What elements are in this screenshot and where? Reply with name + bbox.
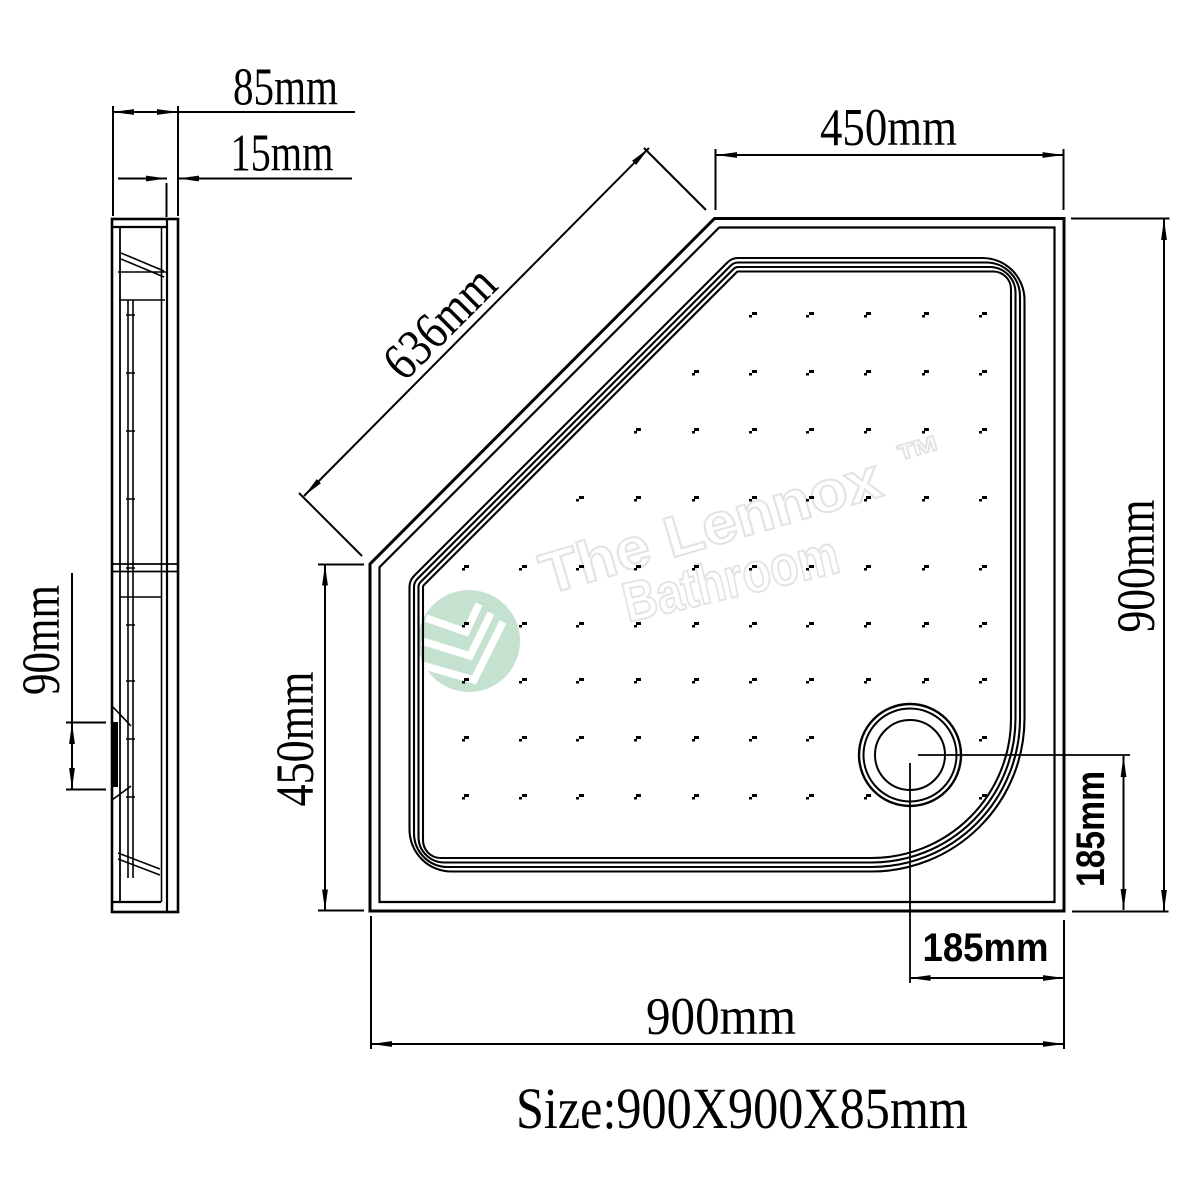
svg-text:185mm: 185mm bbox=[923, 926, 1049, 970]
svg-text:90mm: 90mm bbox=[11, 585, 71, 695]
svg-text:450mm: 450mm bbox=[265, 672, 325, 807]
svg-text:85mm: 85mm bbox=[233, 59, 338, 117]
svg-text:900mm: 900mm bbox=[1106, 500, 1166, 633]
svg-text:15mm: 15mm bbox=[231, 125, 334, 183]
svg-text:Size:900X900X85mm: Size:900X900X85mm bbox=[516, 1076, 968, 1141]
svg-text:185mm: 185mm bbox=[1069, 771, 1113, 887]
svg-text:450mm: 450mm bbox=[820, 99, 957, 157]
svg-text:900mm: 900mm bbox=[646, 988, 796, 1046]
